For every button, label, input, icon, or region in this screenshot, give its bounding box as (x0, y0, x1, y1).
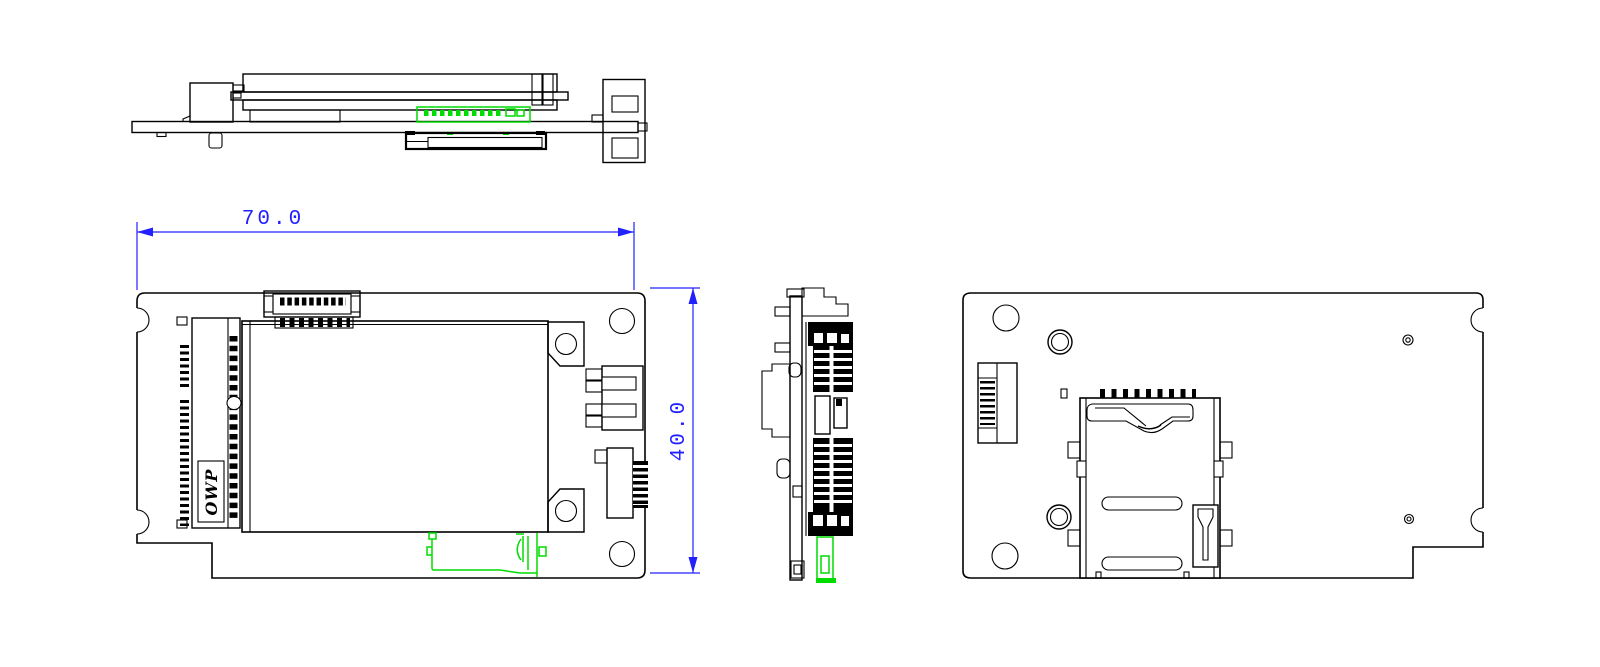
rf-connector (586, 366, 643, 430)
mount-ear-bottom (548, 489, 584, 532)
sim-holder-hidden-outline (427, 533, 546, 577)
side-profile-view (762, 288, 853, 583)
bottom-socket (405, 131, 546, 149)
screws (1403, 335, 1414, 524)
engineering-drawing: 70.0 OWP (0, 0, 1600, 667)
sim-latch (1193, 505, 1218, 567)
connector-stack (808, 322, 853, 536)
height-dimension-label: 40.0 (668, 399, 691, 461)
arrowhead-top-icon (689, 288, 698, 304)
back-view (963, 293, 1486, 578)
hex-nuts (1047, 330, 1072, 529)
edge-connector: OWP (177, 317, 241, 528)
dimension-height: 40.0 (650, 288, 700, 573)
front-view: OWP (135, 291, 649, 578)
drawing-canvas: 70.0 OWP (0, 0, 1600, 667)
mounting-holes-back (992, 305, 1486, 569)
board-edge (132, 122, 638, 133)
standoff-pin (209, 133, 222, 148)
arrowhead-right-icon (618, 228, 634, 237)
mount-ear-top (548, 322, 584, 366)
board-outline (137, 293, 645, 578)
top-pin-header (264, 291, 360, 328)
usb-connector (595, 448, 648, 518)
side-connector-back (978, 363, 1017, 443)
arrowhead-bottom-icon (689, 557, 698, 573)
width-dimension-label: 70.0 (242, 208, 304, 231)
sim-card-holder (1061, 389, 1232, 578)
board-slab (790, 296, 802, 580)
top-profile-view (132, 74, 647, 163)
rear-components-profile (762, 307, 804, 578)
arrowhead-left-icon (137, 228, 153, 237)
logo-text: OWP (202, 469, 221, 516)
top-bracket (802, 288, 848, 316)
left-connector-block (183, 83, 244, 122)
highlighted-connector-side (816, 537, 836, 583)
display-panel (242, 321, 584, 532)
dimension-width: 70.0 (137, 208, 634, 290)
